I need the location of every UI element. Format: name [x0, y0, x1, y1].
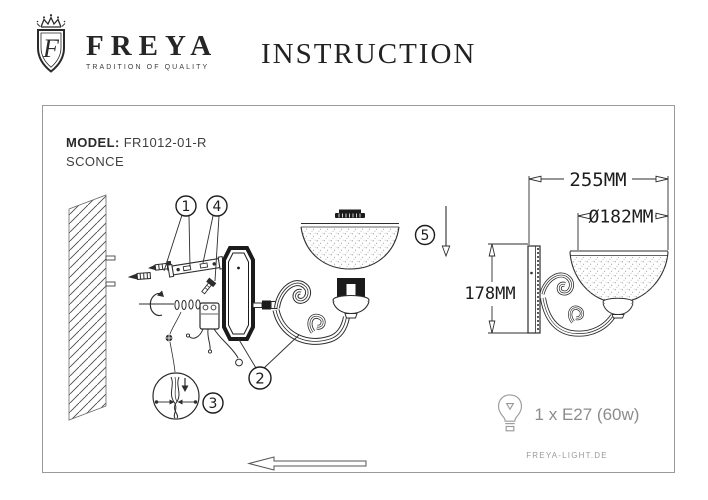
callout-3: 3 — [203, 393, 223, 413]
brand-name: FREYA — [86, 32, 218, 61]
bulb-spec: 1 x E27 (60w) — [535, 405, 640, 425]
freya-crest-icon: F — [26, 14, 76, 80]
wire-loop-end — [236, 359, 243, 366]
shade-finial — [335, 210, 365, 219]
brand-tagline: TRADITION OF QUALITY — [86, 64, 218, 71]
width-dimension-label: 255MM — [569, 169, 626, 191]
svg-text:3: 3 — [209, 396, 218, 412]
fixing-screw-icon — [200, 278, 216, 295]
rotate-symbol-icon — [139, 291, 174, 316]
svg-text:2: 2 — [255, 370, 265, 388]
callout-4: 4 — [207, 196, 227, 216]
scroll-arm — [276, 283, 347, 341]
glass-shade — [301, 224, 399, 271]
wall-keyhole-slot — [106, 282, 115, 286]
wall-backplate — [224, 248, 277, 339]
wall-keyhole-slot — [106, 256, 115, 260]
washer-stack — [175, 300, 200, 310]
bulb-icon — [495, 393, 525, 437]
page-title: INSTRUCTION — [261, 38, 476, 71]
svg-text:1: 1 — [182, 199, 191, 215]
side-socket-cup — [603, 298, 633, 318]
instruction-sheet: F FREYA TRADITION OF QUALITY INSTRUCTION… — [0, 0, 708, 500]
side-backplate — [528, 246, 540, 333]
website: FREYA-LIGHT.DE — [460, 451, 674, 460]
callout-2: 2 — [249, 367, 271, 389]
side-glass-shade — [570, 251, 668, 304]
diameter-dimension-label: Ø182MM — [588, 207, 653, 228]
wall-section — [69, 195, 115, 420]
assembly-panel: MODEL: FR1012-01-R SCONCE — [42, 105, 461, 473]
freya-logo: F FREYA TRADITION OF QUALITY — [26, 14, 218, 80]
svg-text:5: 5 — [421, 228, 430, 244]
height-dimension: 178MM — [464, 244, 528, 333]
assembly-diagram: 1 4 2 3 5 — [43, 106, 460, 472]
bulb-panel: 1 x E27 (60w) FREYA-LIGHT.DE — [460, 383, 675, 473]
shade-drop-arrow-icon — [442, 206, 449, 256]
callout-5: 5 — [416, 226, 435, 245]
dimensions-panel: 255MM Ø182MM 178MM — [460, 105, 675, 384]
lamp-socket — [333, 278, 369, 318]
install-direction-arrow-icon — [249, 457, 366, 470]
round-head-screw-icon — [166, 335, 173, 342]
dimensions-diagram: 255MM Ø182MM 178MM — [460, 106, 673, 383]
svg-text:4: 4 — [213, 199, 222, 215]
anchor-screw-icon — [129, 261, 171, 280]
crest-monogram: F — [42, 34, 60, 63]
callout-1: 1 — [176, 196, 196, 216]
height-dimension-label: 178MM — [464, 284, 515, 304]
diameter-dimension: Ø182MM — [578, 206, 668, 250]
wiring-detail-circle — [153, 342, 199, 419]
